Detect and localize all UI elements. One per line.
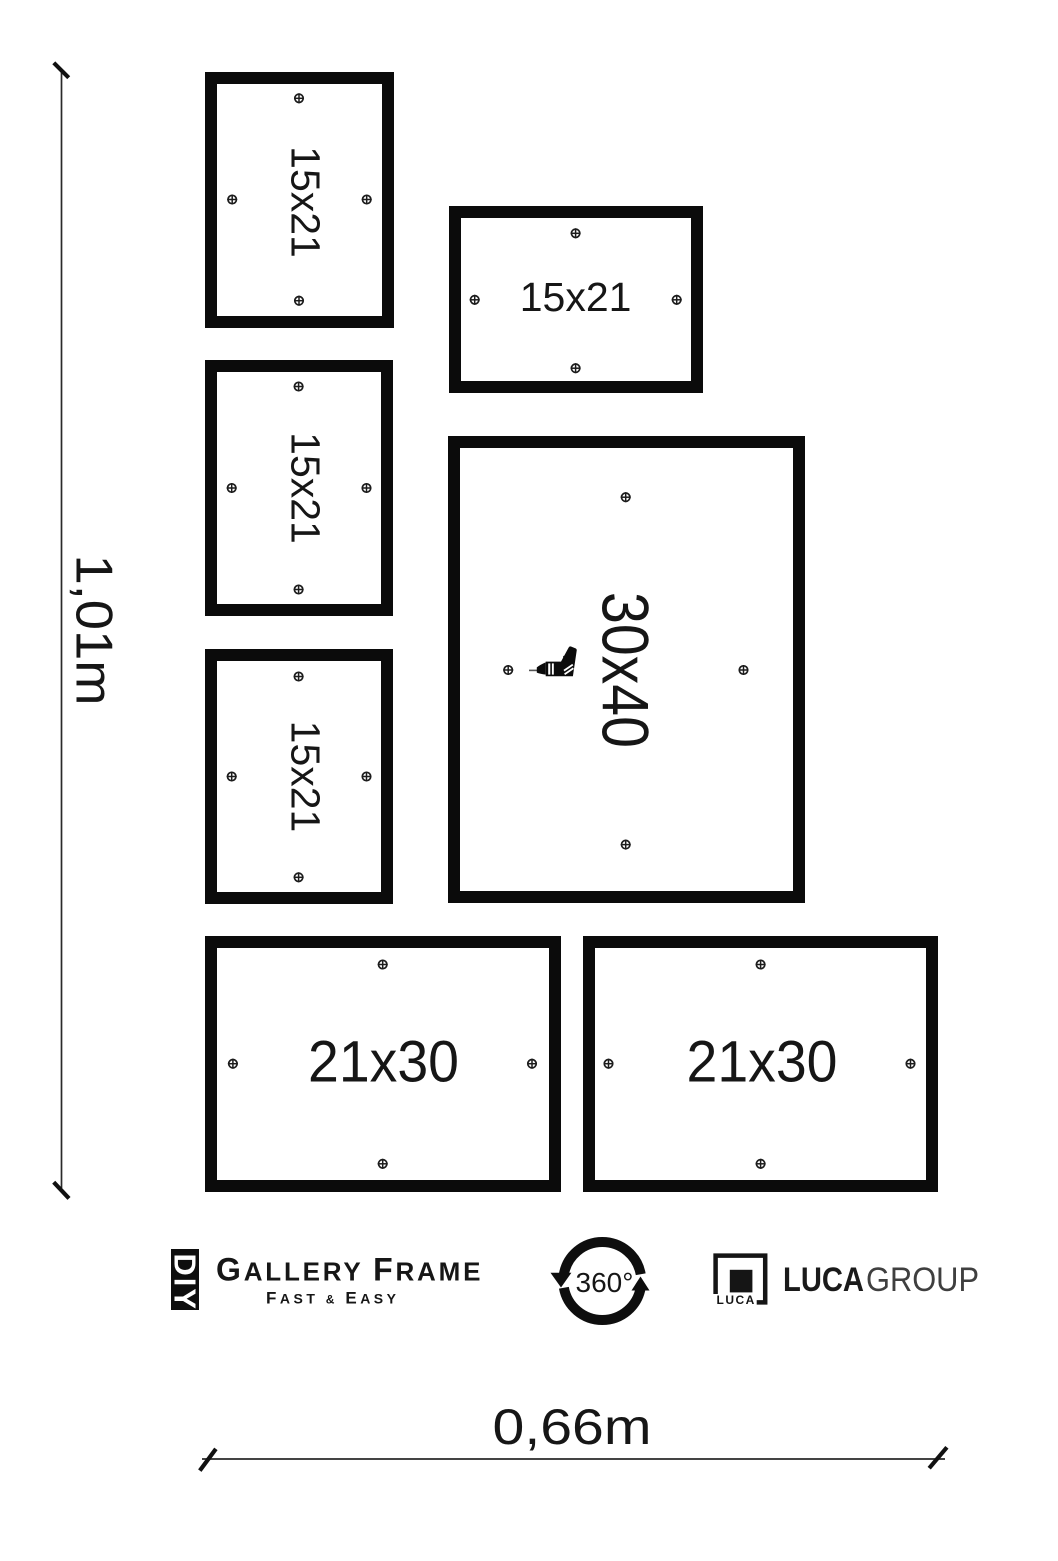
svg-text:GALLERY FRAME: GALLERY FRAME: [216, 1252, 483, 1288]
svg-text:30x40: 30x40: [589, 592, 663, 748]
svg-text:0,66m: 0,66m: [493, 1399, 652, 1455]
svg-text:LUCA: LUCA: [783, 1261, 864, 1299]
svg-text:FAST & EASY: FAST & EASY: [266, 1289, 399, 1308]
svg-text:15x21: 15x21: [283, 721, 329, 833]
svg-text:360°: 360°: [576, 1267, 634, 1298]
svg-text:LUCA: LUCA: [717, 1293, 756, 1307]
svg-text:15x21: 15x21: [283, 146, 329, 258]
svg-text:GROUP: GROUP: [866, 1261, 979, 1299]
svg-text:DIY: DIY: [168, 1253, 203, 1311]
svg-text:15x21: 15x21: [520, 274, 632, 320]
svg-text:15x21: 15x21: [283, 432, 329, 544]
svg-text:21x30: 21x30: [308, 1030, 459, 1095]
svg-text:1,01m: 1,01m: [65, 555, 123, 706]
svg-text:21x30: 21x30: [687, 1030, 838, 1095]
